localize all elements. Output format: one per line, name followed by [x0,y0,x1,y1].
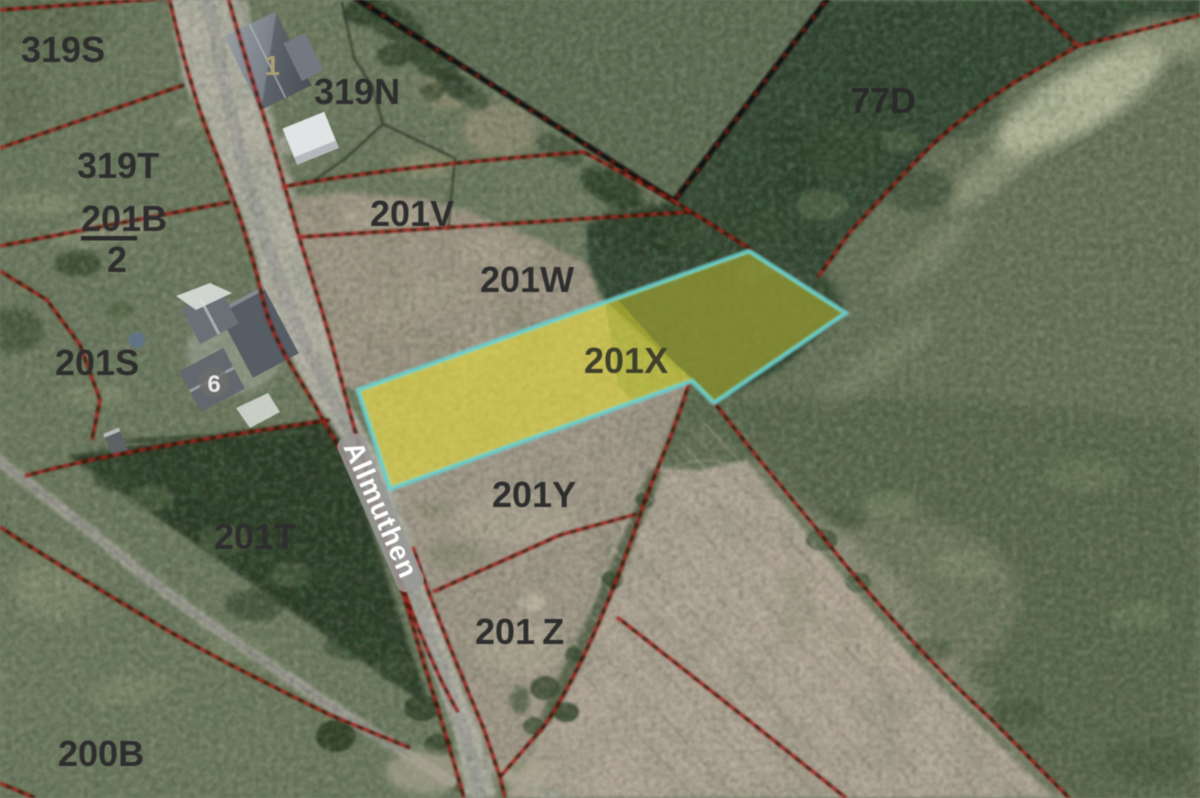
svg-text:201T: 201T [214,516,296,557]
svg-text:2: 2 [107,239,127,280]
svg-text:319S: 319S [21,29,105,70]
svg-text:201B: 201B [81,198,167,239]
svg-text:201Y: 201Y [492,474,576,515]
svg-text:77D: 77D [850,80,916,121]
svg-text:319T: 319T [77,145,159,186]
svg-text:201S: 201S [55,342,139,383]
svg-text:200B: 200B [58,733,144,774]
svg-text:201 Z: 201 Z [475,611,564,652]
svg-text:201W: 201W [480,259,574,300]
svg-text:201X: 201X [584,340,668,381]
svg-text:201V: 201V [370,193,454,234]
svg-text:319N: 319N [314,71,400,112]
